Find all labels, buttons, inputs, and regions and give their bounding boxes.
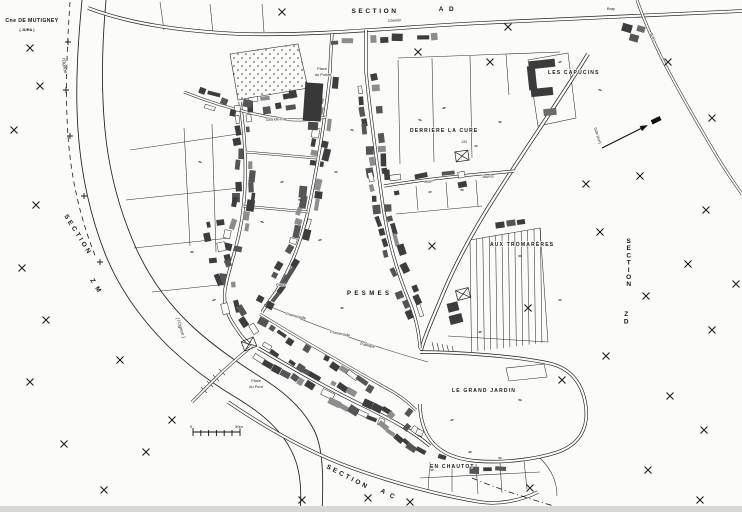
building	[380, 153, 386, 166]
building	[274, 261, 284, 271]
building	[495, 466, 506, 471]
building	[369, 184, 375, 192]
building	[235, 182, 242, 192]
label-derriere-la-cure: DERRIERE LA CURE	[410, 128, 478, 134]
label-street-jaures: Jaurès	[482, 173, 494, 179]
building	[372, 84, 380, 91]
building	[376, 106, 383, 114]
label-promenade-1: Promenade	[286, 311, 307, 320]
survey-cross-icon	[27, 45, 34, 52]
building	[285, 104, 296, 110]
building	[310, 160, 316, 166]
building	[232, 137, 241, 146]
boundary-tick-icon	[81, 193, 87, 199]
building	[285, 244, 295, 255]
label-street-jean: Jean	[424, 179, 433, 184]
building	[314, 191, 322, 199]
building	[517, 219, 526, 225]
survey-cross-icon	[11, 127, 18, 134]
survey-cross-icon	[733, 281, 740, 288]
building	[342, 38, 353, 43]
building	[320, 161, 324, 167]
survey-cross-icon	[527, 485, 534, 492]
building	[229, 218, 238, 230]
boundary-tick-icon	[63, 87, 69, 93]
survey-cross-icon	[645, 467, 652, 474]
building	[372, 205, 381, 215]
building	[384, 169, 390, 180]
parcel-number-mark	[474, 145, 477, 147]
building	[378, 146, 386, 153]
parcel-number-mark	[498, 457, 501, 459]
building	[458, 171, 466, 178]
survey-cross-icon	[637, 173, 644, 180]
label-grande-rue: Grande Rue	[266, 116, 287, 122]
building	[308, 122, 319, 131]
building	[248, 182, 254, 192]
survey-cross-icon	[667, 393, 674, 400]
building	[263, 106, 271, 114]
building	[392, 33, 403, 41]
crossed-box-icon	[455, 288, 470, 301]
building	[629, 33, 640, 42]
building	[392, 233, 399, 246]
label-place-portail-2: du Portail	[315, 72, 332, 77]
building	[372, 196, 377, 202]
parcel-number-mark	[212, 299, 215, 301]
survey-cross-icon	[487, 59, 494, 66]
label-pesmes: PESMES	[347, 291, 392, 297]
building	[416, 304, 424, 317]
building	[235, 115, 240, 123]
label-section-ac-code: AC	[379, 488, 400, 503]
building	[370, 35, 376, 43]
survey-cross-icon	[709, 115, 716, 122]
building	[303, 82, 324, 121]
survey-cross-icon	[429, 243, 436, 250]
label-place-portail-1: Place	[317, 66, 327, 71]
building	[347, 404, 360, 416]
commune-note-line2: ( JURA )	[19, 27, 35, 32]
building	[369, 156, 376, 166]
survey-cross-icon	[665, 59, 672, 66]
building	[382, 250, 388, 258]
building	[275, 102, 282, 109]
building	[417, 35, 429, 39]
label-street-bray-top: Bray	[607, 6, 615, 11]
building	[636, 25, 645, 33]
building	[399, 262, 410, 274]
building	[223, 230, 231, 239]
building	[321, 148, 331, 162]
building	[262, 342, 272, 350]
label-section-ad-word: SECTION	[351, 8, 398, 15]
building	[431, 33, 438, 41]
building	[378, 228, 385, 236]
survey-cross-icon	[19, 265, 26, 272]
survey-cross-icon	[643, 293, 650, 300]
building	[221, 303, 230, 315]
north-arrow-icon	[602, 116, 662, 148]
survey-cross-icon	[37, 83, 44, 90]
building	[395, 290, 405, 299]
building	[404, 408, 413, 418]
building	[458, 181, 468, 188]
building	[238, 316, 249, 328]
boundary-tick-icon	[65, 39, 71, 45]
parcel-number-mark	[418, 119, 421, 121]
survey-cross-icon	[117, 357, 124, 364]
building	[256, 295, 265, 304]
building	[206, 221, 211, 227]
building	[285, 337, 294, 346]
survey-cross-icon	[61, 441, 68, 448]
building	[386, 215, 393, 222]
parcel-number-mark	[478, 331, 481, 333]
building	[235, 159, 241, 169]
label-publique: Publique	[360, 341, 376, 349]
parcel-number-mark	[428, 191, 431, 193]
building	[381, 238, 388, 247]
label-section-ad-code: AD	[439, 6, 459, 13]
building	[238, 149, 244, 160]
boundary-tick-icon	[97, 259, 103, 265]
building	[393, 433, 404, 444]
building	[332, 77, 339, 89]
building	[447, 301, 460, 312]
building	[207, 90, 220, 97]
survey-cross-icon	[709, 327, 716, 334]
parcel-number-mark	[350, 129, 353, 131]
survey-cross-icon	[603, 353, 610, 360]
building	[389, 174, 401, 181]
survey-cross-icon	[701, 427, 708, 434]
label-aux-tromareres: AUX TROMARÈRES	[490, 240, 554, 248]
label-section-zd-code: ZD	[624, 311, 634, 326]
building	[370, 73, 378, 81]
parcel-number-mark	[558, 61, 561, 63]
parcel-number-mark	[518, 399, 521, 401]
parcel-number-mark	[340, 307, 343, 308]
label-river-ognon-small: l'Ognon	[61, 57, 68, 74]
survey-cross-icon	[525, 305, 532, 312]
label-section-zd-word: SECTION	[626, 238, 634, 288]
survey-cross-icon	[299, 497, 306, 504]
orchard-area	[230, 44, 308, 100]
building	[330, 381, 336, 387]
parcel-number-mark	[518, 255, 521, 256]
survey-cross-icon	[27, 379, 34, 386]
survey-cross-icon	[279, 9, 286, 16]
building	[279, 369, 291, 379]
cadastral-map: Cne DE MUTIGNEY ( JURA ) SECTION AD SECT…	[0, 0, 742, 512]
building	[621, 23, 633, 33]
parcel-number-mark	[598, 89, 601, 91]
label-place: Place	[276, 282, 286, 287]
building	[216, 219, 225, 226]
survey-cross-icon	[685, 261, 692, 268]
building	[310, 150, 318, 157]
map-labels: Cne DE MUTIGNEY ( JURA ) SECTION AD SECT…	[5, 6, 657, 503]
scan-edge	[0, 506, 742, 512]
building	[416, 446, 427, 455]
parcel-number-mark	[280, 181, 283, 183]
building	[358, 86, 363, 94]
building	[311, 138, 317, 147]
label-en-chautot: EN CHAUTOT	[430, 464, 475, 470]
parcel-number-mark	[450, 419, 453, 421]
building	[229, 109, 236, 116]
parcel-number-mark	[460, 189, 463, 190]
label-promenade-2: Promenade	[330, 329, 351, 338]
parcel-number-133: 133	[461, 140, 467, 144]
parcel-number-mark	[260, 221, 263, 223]
building	[294, 218, 303, 226]
label-river-ognon-main: ( l'Ognon )	[175, 317, 186, 339]
building	[378, 133, 385, 143]
parcel-number-mark	[318, 239, 321, 241]
building	[246, 199, 255, 212]
building	[249, 323, 259, 335]
building	[374, 216, 382, 227]
label-street-chemin: Chemin	[388, 17, 402, 23]
label-place-pont-1: Place	[251, 378, 261, 383]
building	[326, 119, 331, 132]
building	[543, 108, 557, 116]
building	[527, 66, 537, 91]
building	[209, 258, 217, 264]
building	[361, 123, 367, 134]
building	[365, 384, 374, 394]
parcel-number-mark	[198, 161, 201, 163]
cadastral-map-canvas: Cne DE MUTIGNEY ( JURA ) SECTION AD SECT…	[0, 0, 742, 512]
survey-cross-icon	[703, 207, 710, 214]
building	[506, 219, 516, 226]
building	[384, 204, 391, 212]
building	[244, 223, 249, 231]
building	[366, 415, 377, 422]
building	[246, 114, 252, 122]
survey-cross-icon	[365, 495, 372, 502]
building	[396, 243, 406, 256]
building	[380, 37, 388, 43]
building	[390, 223, 398, 235]
building	[449, 313, 464, 325]
building	[411, 284, 419, 292]
parcel-number-mark	[334, 171, 337, 172]
building	[260, 96, 270, 101]
parcel-number-mark	[190, 251, 193, 252]
building	[248, 170, 255, 183]
building	[217, 242, 226, 252]
building	[246, 127, 250, 133]
survey-cross-icon	[33, 202, 40, 209]
building	[483, 467, 492, 471]
building	[248, 161, 252, 169]
scale-bar	[193, 428, 240, 436]
survey-cross-icon	[559, 377, 566, 384]
building	[357, 410, 368, 418]
survey-cross-icon	[505, 24, 512, 31]
survey-cross-icon	[43, 317, 50, 324]
building	[331, 41, 338, 45]
building	[289, 237, 297, 244]
survey-cross-icon	[101, 487, 108, 494]
building	[394, 190, 400, 195]
parcel-number-mark	[468, 451, 471, 453]
label-section-zm-word: SECTION	[62, 213, 93, 257]
survey-cross-icon	[415, 49, 422, 56]
building	[438, 454, 447, 460]
commune-note-line1: Cne DE MUTIGNEY	[5, 18, 58, 24]
crossed-box-symbols	[241, 150, 470, 351]
survey-cross-icon	[143, 449, 150, 456]
survey-cross-icon	[697, 497, 704, 504]
building	[412, 294, 422, 305]
scale-bar-max: 50m	[235, 424, 243, 429]
scale-bar-zero: 0	[190, 424, 193, 429]
parcel-number-mark	[558, 299, 561, 300]
label-le-grand-jardin: LE GRAND JARDIN	[452, 388, 516, 394]
label-section-zm-code: ZM	[88, 277, 105, 298]
building	[329, 361, 340, 372]
parcel-number-mark	[498, 121, 501, 123]
building	[231, 282, 236, 288]
survey-cross-icon	[597, 229, 604, 236]
building	[366, 146, 374, 155]
survey-cross-icon	[583, 181, 590, 188]
crossed-box-icon	[455, 150, 469, 162]
building	[204, 104, 215, 111]
parcel-number-mark	[442, 107, 445, 109]
label-les-capucins: LES CAPUCINS	[548, 70, 600, 76]
building	[198, 87, 206, 95]
building	[271, 271, 278, 278]
building	[358, 96, 363, 105]
building	[442, 171, 455, 176]
label-place-pont-2: du Pont	[249, 384, 263, 389]
building	[358, 107, 365, 117]
survey-cross-icon	[407, 499, 414, 506]
building	[495, 221, 505, 228]
building	[314, 199, 320, 211]
survey-cross-icon	[169, 417, 176, 424]
building	[386, 429, 396, 438]
label-street-gde-rue: Gde (rue)	[593, 127, 603, 145]
building	[268, 325, 275, 332]
